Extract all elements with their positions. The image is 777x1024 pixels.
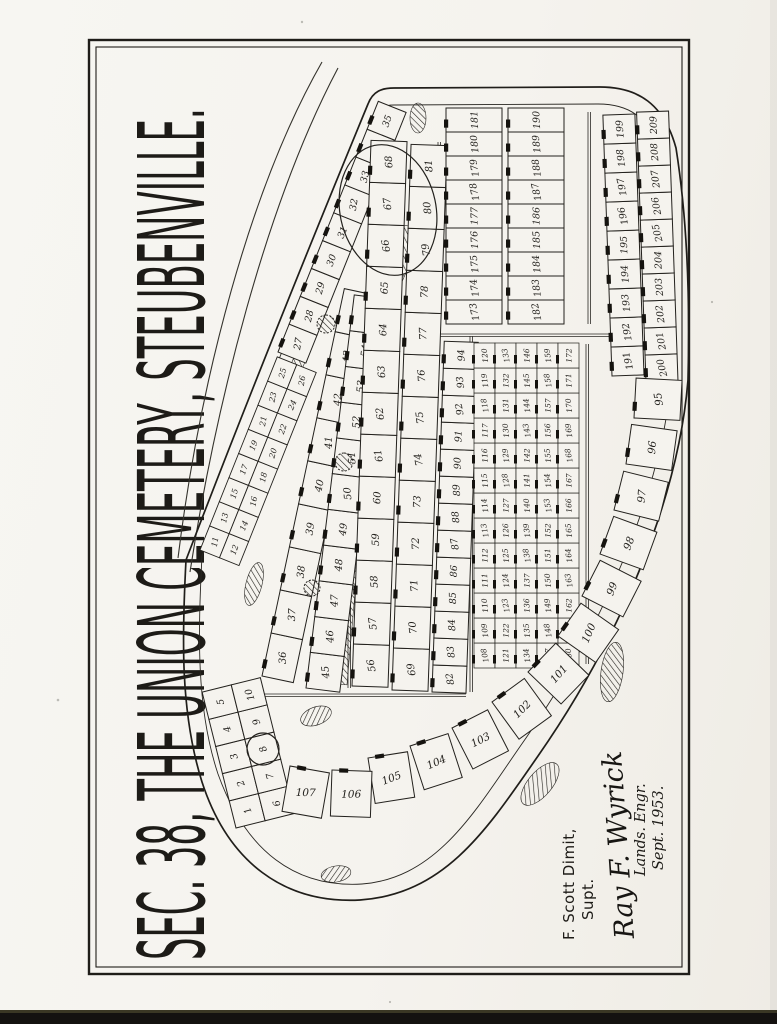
monument-mark [472,580,475,589]
lot-number: 172 [564,348,573,363]
monument-mark [603,188,608,197]
monument-mark [506,192,510,200]
lot-number: 130 [501,423,511,438]
lot-number: 96 [646,440,659,455]
monument-mark [444,120,448,128]
lot-number: 176 [469,231,481,250]
lot-number: 141 [522,473,532,488]
lot-number: 170 [564,398,574,413]
monument-mark [606,275,611,284]
lot-number: 199 [614,119,627,138]
lot-number: 59 [371,533,382,547]
lot-number: 70 [407,620,420,635]
monument-mark [610,362,615,371]
lot-block-east_2: 182183184185186187188189190 [506,108,564,324]
lot-number: 112 [480,548,489,563]
lot-number: 157 [543,398,552,413]
monument-mark [514,455,517,464]
lot-number: 46 [325,629,336,644]
monument-mark [472,555,475,564]
monument-mark [472,455,475,464]
monument-mark [514,580,517,589]
lot-number: 41 [324,436,335,450]
monument-mark [535,405,538,414]
lot-number: 203 [654,277,667,297]
lot-number: 66 [380,238,393,253]
lot-number: 88 [450,510,462,523]
lot-number: 162 [564,598,573,613]
lot-number: 127 [501,498,510,513]
scan-edge-bottom [0,1013,777,1024]
monument-mark [472,430,475,439]
monument-mark [444,312,448,320]
monument-mark [395,547,400,556]
lot-number: 64 [378,323,389,336]
lot-number: 132 [501,373,510,388]
monument-mark [393,589,398,598]
scan-edge-tint [0,1010,777,1013]
monument-mark [359,418,364,427]
lot-number: 48 [334,558,346,572]
monument-mark [444,168,448,176]
monument-mark [535,630,538,639]
lot-number: 91 [453,430,464,442]
lot-number: 185 [531,231,543,250]
monument-mark [642,314,647,323]
superintendent-title: Supt. [579,878,597,920]
monument-mark [514,505,517,514]
rotated-sheet: SEC. 38, THE UNION CEMETERY, STEUBENVILL… [89,40,689,974]
lot-number: 68 [384,155,396,168]
monument-mark [493,555,496,564]
lot-number: 94 [456,349,468,362]
lot-number: 56 [365,658,378,673]
lot-number: 75 [415,411,427,425]
lot-number: 60 [372,491,383,505]
lot-number: 93 [455,375,467,388]
monument-mark [605,246,610,255]
monument-mark [405,254,410,263]
lot-number: 177 [470,206,481,225]
lot-block-grid: 1081091101111121131141151161171181191201… [472,343,579,668]
lot-number: 95 [652,391,666,406]
monument-mark [444,144,448,152]
lot-number: 21 [258,415,269,428]
monument-mark [506,216,510,224]
monument-mark [636,152,641,161]
lot-number: 67 [382,196,395,211]
monument-mark [444,288,448,296]
lot-number: 72 [411,537,422,550]
monument-mark [556,355,559,364]
superintendent-name: F. Scott Dimit, [560,828,578,940]
lot-number: 126 [501,523,511,538]
lot-number: 11 [210,536,221,548]
tree-symbol [317,315,335,333]
monument-mark [432,624,437,633]
monument-mark [556,630,559,639]
monument-mark [472,655,475,664]
monument-mark [493,430,496,439]
lot-number: 142 [522,448,531,463]
lot-number: 83 [445,645,457,658]
lot-number: 106 [341,788,362,800]
monument-mark [506,144,510,152]
tree-symbol [304,580,320,596]
lot-number: 63 [376,365,388,378]
lot-number: 85 [448,592,459,604]
monument-mark [641,287,646,296]
lot-number: 140 [522,498,532,513]
lot-number: 156 [543,423,553,438]
monument-mark [438,462,443,471]
lot-number: 89 [451,484,463,497]
tree-symbol [335,453,353,471]
monument-mark [535,480,538,489]
lot-number: 152 [543,523,552,538]
lot-number: 39 [305,521,318,536]
lot-number: 65 [379,281,390,294]
monument-mark [366,208,371,217]
lot-number: 84 [447,619,459,632]
lot-number: 38 [296,565,308,579]
lot-number: 194 [619,264,632,283]
monument-mark [535,430,538,439]
lot-number: 209 [648,116,660,136]
monument-mark [535,455,538,464]
monument-mark [441,381,446,390]
lot-number: 190 [531,111,543,130]
monument-mark [353,585,358,594]
monument-mark [433,597,438,606]
monument-mark [493,630,496,639]
lot-number: 181 [469,111,481,130]
lot-number: 121 [501,648,511,663]
lot-number: 151 [543,548,553,563]
monument-mark [514,530,517,539]
monument-mark [472,505,475,514]
monument-mark [472,405,475,414]
monument-mark [358,460,363,469]
lot-number: 204 [653,251,665,271]
monument-mark [444,192,448,200]
map-date: Sept. 1953. [651,786,667,870]
lot-number: 61 [373,448,386,462]
signature-block: F. Scott Dimit, Supt. Ray F. Wyrick Land… [560,750,667,941]
lot-number: 47 [330,594,341,609]
shrub-hatch [514,756,566,811]
monument-mark [556,380,559,389]
lot-number: 175 [469,254,482,273]
monument-mark [644,368,649,377]
shrub-hatch [241,561,267,608]
monument-mark [408,170,413,179]
monument-mark [493,405,496,414]
monument-mark [535,605,538,614]
monument-mark [493,530,496,539]
monument-mark [436,516,441,525]
lot-number: 111 [480,573,490,588]
monument-mark [535,530,538,539]
monument-mark [514,405,517,414]
lot-number: 125 [501,548,511,563]
lot-number: 117 [480,423,489,438]
lot-number: 171 [564,373,574,388]
monument-mark [556,405,559,414]
monument-mark [493,480,496,489]
lot-number: 166 [564,498,574,513]
lot-number: 86 [449,565,460,577]
lot-number: 155 [543,448,553,463]
lot-number: 107 [296,787,317,799]
lot-number: 186 [532,207,543,225]
monument-mark [356,501,361,510]
monument-mark [514,555,517,564]
monument-mark [431,651,436,660]
monument-mark [535,555,538,564]
monument-mark [430,678,435,687]
monument-mark [604,217,609,226]
scan-speck [389,1001,391,1003]
lot-number: 76 [416,368,428,382]
lot-number: 50 [342,486,354,500]
monument-mark [640,260,645,269]
monument-mark [434,570,439,579]
monument-mark [355,543,360,552]
lot-block-east_1: 173174175176177178179180181 [444,108,502,324]
monument-mark [535,505,538,514]
monument-mark [493,605,496,614]
monument-mark [392,631,397,640]
monument-mark [535,355,538,364]
lot-number: 180 [469,134,482,153]
monument-mark [506,168,510,176]
lot-number: 208 [649,142,662,162]
monument-mark [403,296,408,305]
monument-mark [506,288,510,296]
monument-mark [506,120,510,128]
lot-number: 146 [522,348,532,363]
monument-mark [608,333,613,342]
monument-mark [506,240,510,248]
monument-mark [472,380,475,389]
lot-number: 81 [424,159,436,172]
lot-number: 137 [522,573,531,588]
monument-mark [493,355,496,364]
lot-number: 26 [297,375,308,388]
lot-number: 131 [501,398,511,413]
lot-number: 165 [564,523,574,538]
monument-mark [556,480,559,489]
lot-number: 71 [409,579,421,592]
lot-number: 184 [531,254,544,273]
lot-number: 135 [522,623,532,638]
lot-number: 49 [338,522,351,538]
monument-mark [440,408,445,417]
monument-mark [514,480,517,489]
lot-number: 90 [453,457,464,469]
monument-mark [352,627,357,636]
monument-mark [472,630,475,639]
monument-mark [556,505,559,514]
lot-number: 77 [418,327,429,341]
shrub-hatch [410,103,426,133]
lot-number: 58 [369,575,381,588]
lot-number: 120 [480,348,490,363]
lot-number: 136 [522,598,532,613]
lot-number: 69 [405,662,418,677]
monument-mark [444,264,448,272]
monument-mark [514,430,517,439]
lot-number: 189 [531,134,544,153]
lot-number: 145 [522,373,532,388]
scan-speck [57,699,60,702]
lot-number: 195 [619,236,631,255]
monument-mark [493,380,496,389]
monument-mark [514,355,517,364]
monument-mark [406,212,411,221]
monument-mark [472,530,475,539]
monument-mark [493,505,496,514]
monument-mark [643,341,648,350]
monument-mark [444,216,448,224]
lot-number: 62 [375,407,387,421]
scan-speck [301,21,303,23]
monument-mark [535,380,538,389]
lot-number: 92 [454,402,467,416]
monument-mark [401,380,406,389]
scan-edge-right [770,0,777,1024]
shrub-hatch [298,702,334,730]
monument-mark [363,292,368,301]
monument-mark [556,580,559,589]
plat-svg: SEC. 38, THE UNION CEMETERY, STEUBENVILL… [0,0,777,1024]
monument-mark [514,605,517,614]
lot-number: 45 [320,665,332,680]
lot-number: 115 [480,473,490,488]
monument-mark [472,355,475,364]
monument-mark [339,768,348,773]
monument-mark [437,489,442,498]
lot-number: 116 [480,448,490,463]
monument-mark [368,166,373,175]
monument-mark [601,130,606,139]
monument-mark [556,430,559,439]
monument-mark [390,673,395,682]
monument-mark [444,240,448,248]
monument-mark [441,354,446,363]
lot-number: 110 [480,598,490,613]
monument-mark [362,334,367,343]
monument-mark [639,233,644,242]
lot-number: 16 [249,496,260,508]
monument-mark [632,402,637,411]
monument-mark [535,580,538,589]
monument-mark [493,655,496,664]
scan-speck [711,301,713,303]
monument-mark [493,455,496,464]
monument-mark [556,555,559,564]
monument-mark [514,630,517,639]
lot-number: 78 [419,285,430,298]
monument-mark [493,580,496,589]
lot-number: 122 [501,623,510,638]
lot-number: 97 [636,489,649,504]
monument-mark [365,250,370,259]
scanned-page: SEC. 38, THE UNION CEMETERY, STEUBENVILL… [0,0,777,1024]
lot-number: 73 [412,495,423,508]
lot-number: 37 [287,608,299,622]
lot-number: 167 [564,473,573,488]
monument-mark [635,125,640,134]
lot-number: 80 [422,200,435,215]
lot-number: 150 [543,573,553,588]
monument-mark [602,159,607,168]
monument-mark [472,605,475,614]
monument-mark [350,669,355,678]
monument-mark [439,435,444,444]
monument-mark [514,655,517,664]
monument-mark [399,422,404,431]
monument-mark [472,480,475,489]
monument-mark [396,505,401,514]
monument-mark [506,312,510,320]
monument-mark [435,543,440,552]
monument-mark [361,376,366,385]
monument-mark [402,338,407,347]
lot-number: 74 [413,452,426,466]
lot-number: 82 [444,672,457,686]
monument-mark [556,530,559,539]
monument-mark [607,304,612,313]
engineer-title: Lands. Engr. [633,783,649,877]
lot-number: 36 [278,651,289,664]
monument-mark [514,380,517,389]
lot-number: 57 [367,616,380,631]
monument-mark [506,264,510,272]
lot-number: 32 [348,198,361,212]
monument-mark [556,455,559,464]
monument-mark [638,206,643,215]
monument-mark [637,179,642,188]
monument-mark [556,605,559,614]
monument-mark [398,464,403,473]
